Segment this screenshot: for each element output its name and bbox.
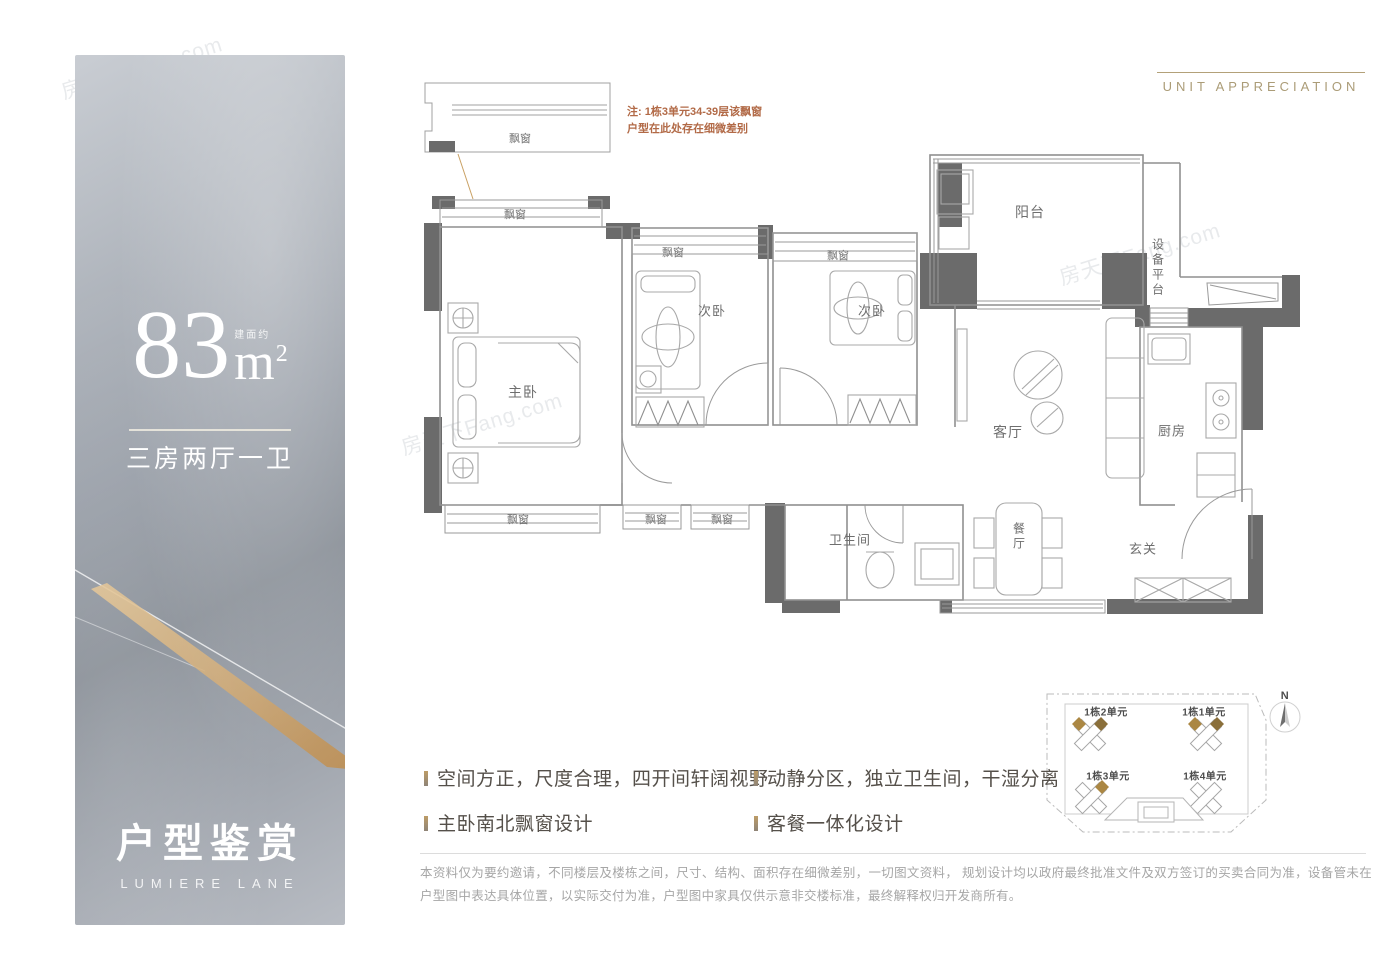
site-unit2-label: 1栋2单元 — [1084, 704, 1128, 719]
site-unit4-label: 1栋4单元 — [1183, 768, 1227, 783]
label-master-bay-top: 飘窗 — [504, 206, 526, 222]
site-compass-label: N — [1281, 690, 1289, 702]
site-unit1-label: 1栋1单元 — [1182, 704, 1226, 719]
left-info-panel: 83 建面约 m2 三房两厅一卫 户型鉴赏 LUMIERE LANE — [75, 55, 345, 925]
equipment-platform-tray — [1207, 283, 1278, 305]
label-bed3-bay: 飘窗 — [827, 247, 849, 263]
feature-item: 主卧南北飘窗设计 — [424, 809, 593, 836]
area-exponent: 2 — [276, 341, 288, 367]
label-equipment-platform: 设备平台 — [1150, 238, 1167, 298]
windows — [440, 159, 1188, 613]
doors — [622, 363, 1252, 559]
floor-plan-drawing — [410, 75, 1310, 660]
disclaimer-text: 本资料仅为要约邀请，不同楼层及楼栋之间，尺寸、结构、面积存在细微差别，一切图文资… — [420, 862, 1372, 908]
label-kitchen: 厨房 — [1158, 421, 1186, 440]
inset-wall — [429, 141, 455, 152]
label-entry: 玄关 — [1129, 539, 1157, 558]
footer-divider — [420, 853, 1366, 854]
building-unit2 — [1072, 717, 1108, 751]
label-dining-room: 餐厅 — [1011, 522, 1028, 552]
unit-appreciation-flyer: 房天下Fang.com 房天下Fang.com 房天下Fang.com 房天下F… — [0, 0, 1400, 974]
feature-bullet-bar — [754, 816, 758, 831]
note-line-2: 户型在此处存在细微差别 — [627, 121, 787, 138]
feature-text: 客餐一体化设计 — [767, 814, 904, 835]
feature-item: 空间方正，尺度合理，四开间轩阔视野 — [424, 764, 769, 791]
feature-text: 主卧南北飘窗设计 — [437, 814, 593, 835]
label-bed2-bay: 飘窗 — [662, 244, 684, 260]
feature-text: 空间方正，尺度合理，四开间轩阔视野 — [437, 769, 769, 790]
inset-leader-line — [458, 154, 473, 199]
building-unit4 — [1190, 782, 1221, 813]
note-line-1: 注: 1栋3单元34-39层该飘窗 — [627, 104, 787, 121]
panel-subtitle: LUMIERE LANE — [75, 876, 345, 891]
area-prefix-label: 建面约 — [234, 326, 270, 341]
label-third-bedroom: 次卧 — [858, 301, 886, 320]
gold-streak-decoration — [75, 55, 345, 925]
clubhouse — [1105, 798, 1203, 822]
area-figure: 83 建面约 m2 — [75, 307, 345, 383]
compass — [1270, 702, 1300, 732]
feature-bullet-bar — [424, 771, 428, 786]
header-rule — [1157, 72, 1365, 73]
area-unit: m2 — [234, 342, 287, 384]
feature-item: 客餐一体化设计 — [754, 809, 904, 836]
building-unit1 — [1188, 717, 1224, 751]
feature-bullet-bar — [754, 771, 758, 786]
feature-bullet-bar — [424, 816, 428, 831]
label-master-bay-bottom: 飘窗 — [507, 511, 529, 527]
feature-item: 动静分区，独立卫生间，干湿分离 — [754, 764, 1060, 791]
feature-text: 动静分区，独立卫生间，干湿分离 — [767, 769, 1060, 790]
label-balcony: 阳台 — [1015, 202, 1045, 222]
label-inset-bay-window: 飘窗 — [509, 130, 531, 146]
label-living-room: 客厅 — [993, 422, 1023, 442]
label-corridor-bay-2: 飘窗 — [711, 511, 733, 527]
panel-divider-line — [129, 429, 291, 431]
area-value: 83 — [132, 307, 230, 383]
panel-title: 户型鉴赏 — [75, 811, 345, 869]
label-corridor-bay-1: 飘窗 — [645, 511, 667, 527]
label-bathroom: 卫生间 — [829, 530, 871, 549]
building-unit3 — [1075, 780, 1109, 814]
label-master-bedroom: 主卧 — [508, 382, 538, 402]
layout-text: 三房两厅一卫 — [75, 439, 345, 475]
site-plan-drawing — [1035, 672, 1305, 852]
label-second-bedroom: 次卧 — [698, 301, 726, 320]
floor-plan-note: 注: 1栋3单元34-39层该飘窗 户型在此处存在细微差别 — [627, 104, 787, 138]
site-unit3-label: 1栋3单元 — [1086, 768, 1130, 783]
